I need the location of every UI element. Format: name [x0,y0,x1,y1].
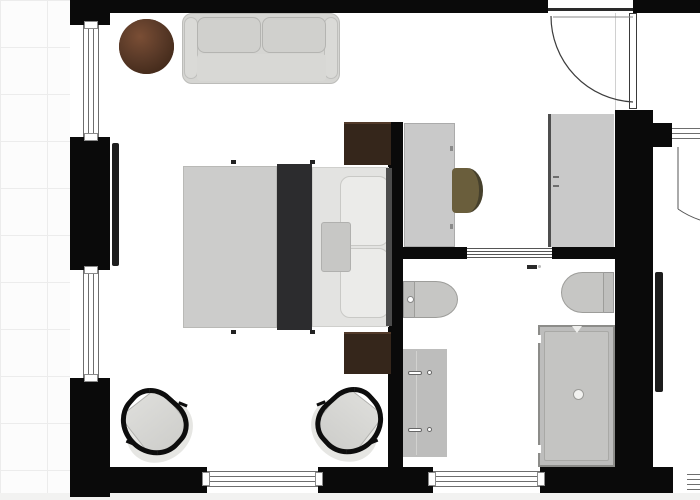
entry-door-lintel [548,8,633,11]
window-left-lower[interactable] [83,270,99,378]
window-exterior-right-bottom [687,474,700,490]
wall-bottom-2[interactable] [318,467,433,493]
desk-handle [450,224,453,229]
switch-dot [538,265,541,268]
bed-runner [277,164,312,330]
wardrobe-handle [553,176,559,178]
window-cap [315,472,323,486]
chair-frame [304,376,396,468]
wall-bottom-3[interactable] [540,467,673,493]
wall-top-right[interactable] [633,0,700,13]
adjacent-door-arc [678,209,700,220]
round-side-table[interactable] [119,19,174,74]
nightstand-top[interactable] [344,122,391,165]
toilet-flush-button [407,296,414,303]
wardrobe-handle [553,185,559,187]
entry-door-leaf[interactable] [629,13,637,109]
bed-cushion [321,222,351,272]
window-cap [428,472,436,486]
entry-door-swing-arc [551,16,633,102]
toilet-bowl [414,281,458,318]
entry-door-opening [548,0,633,13]
faucet [408,428,422,432]
bed-foot [310,160,315,164]
bed-duvet [183,166,277,328]
window-left-upper[interactable] [83,25,99,137]
window-cap [84,133,98,141]
wardrobe[interactable] [548,114,614,247]
desk-chair[interactable] [452,168,483,213]
sliding-bathroom-door[interactable] [467,248,552,258]
double-bed[interactable] [183,163,392,331]
bidet[interactable] [561,272,614,313]
armchair-right[interactable] [292,368,401,477]
canvas-grid [0,0,70,500]
wall-top-left[interactable] [70,0,548,13]
chair-frame [108,377,200,469]
window-cap [84,374,98,382]
sink-drain [427,427,432,432]
sofa-seat [197,54,326,81]
wall-right[interactable] [615,110,653,493]
bed-headboard [386,168,392,326]
shower-drain [573,389,584,400]
sink-drain [427,370,432,375]
toilet[interactable] [403,281,458,318]
window-bottom-bedroom[interactable] [207,471,318,487]
wall-bathroom-left[interactable] [388,247,467,259]
desk-handle [450,146,453,151]
sofa-back-cushion [262,17,326,53]
floor-plan-canvas [0,0,700,500]
shower-door-hinge [538,335,541,343]
bidet-bowl [561,272,604,313]
bed-foot [231,330,236,334]
window-cap [537,472,545,486]
entry-door-jamb-line [615,13,616,110]
shower[interactable] [538,325,615,467]
shower-head-icon [572,326,582,333]
sofa[interactable] [182,13,340,84]
window-exterior-right-top [672,128,700,143]
shower-door-hinge [538,445,541,453]
adjacent-room-tv [655,272,663,392]
window-bottom-bathroom[interactable] [433,471,540,487]
wall-right-stub[interactable] [653,123,672,147]
wall-switch[interactable] [527,265,537,269]
nightstand-bottom[interactable] [344,332,391,374]
wall-bottom-1[interactable] [70,467,207,493]
desk[interactable] [404,123,455,247]
wall-tv[interactable] [112,143,119,266]
sofa-arm-left [184,17,198,79]
table-wood-grain [119,19,174,74]
window-cap [202,472,210,486]
armchair-left[interactable] [102,369,211,478]
window-cap [84,21,98,29]
sofa-arm-right [324,17,338,79]
wall-bathroom-right[interactable] [552,247,615,259]
wall-left-middle[interactable] [70,137,110,270]
vanity-counter-edge [416,351,417,455]
double-vanity[interactable] [403,349,447,457]
sofa-back-cushion [197,17,261,53]
faucet [408,371,422,375]
window-cap [84,266,98,274]
bed-foot [231,160,236,164]
bed-foot [310,330,315,334]
